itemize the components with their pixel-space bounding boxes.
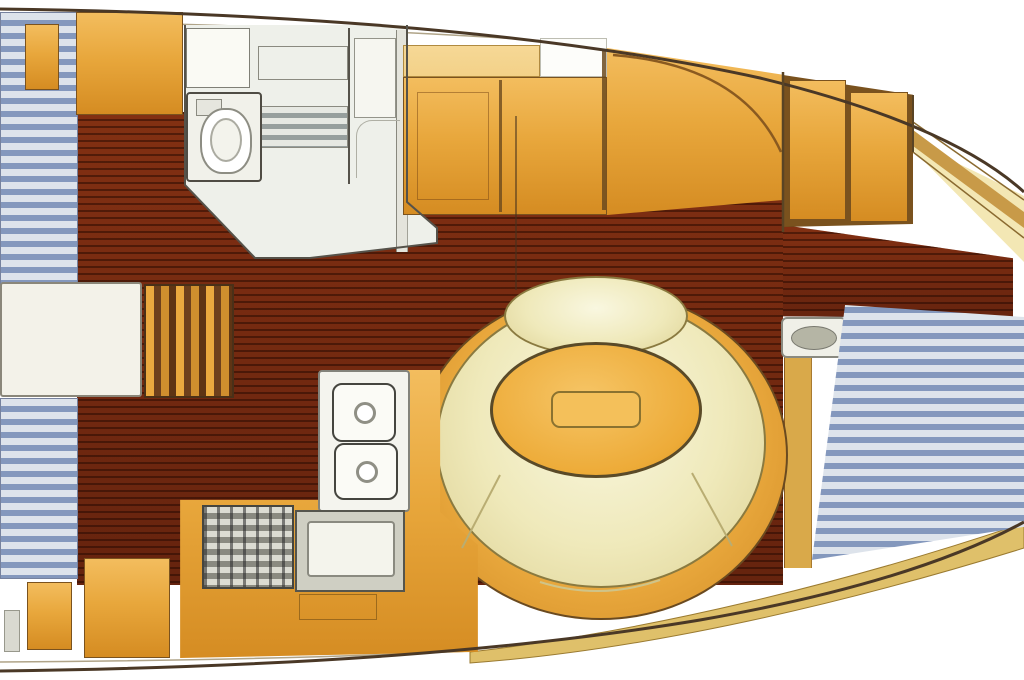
salon-cabinets-forward (607, 48, 783, 215)
engine-box (0, 282, 142, 397)
sink-basin (307, 521, 395, 577)
aft-cabinet-lower-large (84, 558, 170, 658)
head-shelf (258, 46, 348, 80)
seat-pad-oval (791, 326, 837, 350)
aft-locker-strip (4, 610, 20, 652)
aft-cabinet-upper (76, 12, 183, 115)
cabin-sole-forward (783, 225, 1013, 320)
salon-cabinet-divider-1 (499, 80, 502, 212)
forward-v-berth (812, 300, 1024, 562)
aft-nightstand-upper (25, 24, 59, 90)
deck-hatch-notch (540, 38, 607, 77)
salon-sideboard-top (403, 45, 540, 77)
wardrobe-door-right (850, 92, 908, 222)
salon-cabinet-door-inset (417, 92, 489, 200)
aft-cabinet-lower-small (27, 582, 72, 650)
companionway-steps (144, 284, 234, 398)
burner-ring-bottom (356, 461, 378, 483)
shelf-line-2 (913, 152, 1024, 238)
table-leaf-inset (551, 391, 641, 428)
head-locker (186, 28, 250, 88)
toilet-seat (210, 118, 242, 162)
head-vent-grate (260, 106, 348, 148)
wardrobe-door-left (789, 80, 846, 220)
sailboat-floor-plan (0, 0, 1024, 680)
forward-cabin-step (784, 350, 812, 568)
under-sink-door (299, 594, 377, 620)
oven-control-panel (202, 505, 294, 589)
shower-pan-corner (356, 120, 400, 178)
burner-ring-top (354, 402, 376, 424)
shelf-wood-band (913, 130, 1024, 228)
salon-cabinet-divider-2 (602, 50, 606, 210)
shelf-line-1 (913, 122, 1024, 200)
aft-berth-lower (0, 398, 78, 579)
shower-panel (354, 38, 396, 118)
